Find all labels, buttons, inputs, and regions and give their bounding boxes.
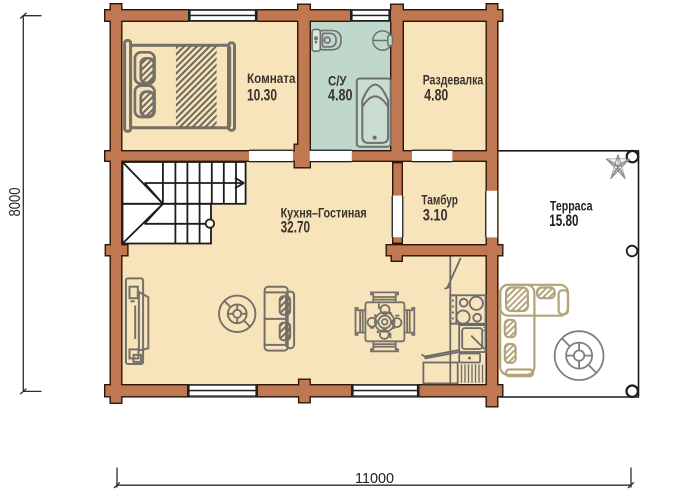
svg-text:15.80: 15.80: [549, 211, 578, 230]
svg-text:3.10: 3.10: [423, 205, 448, 224]
svg-text:10.30: 10.30: [247, 86, 277, 105]
svg-text:32.70: 32.70: [281, 217, 311, 236]
svg-text:11000: 11000: [355, 470, 394, 487]
svg-text:4.80: 4.80: [424, 86, 448, 105]
svg-text:Комната: Комната: [247, 70, 296, 86]
svg-text:8000: 8000: [7, 187, 24, 216]
svg-text:4.80: 4.80: [328, 86, 353, 105]
